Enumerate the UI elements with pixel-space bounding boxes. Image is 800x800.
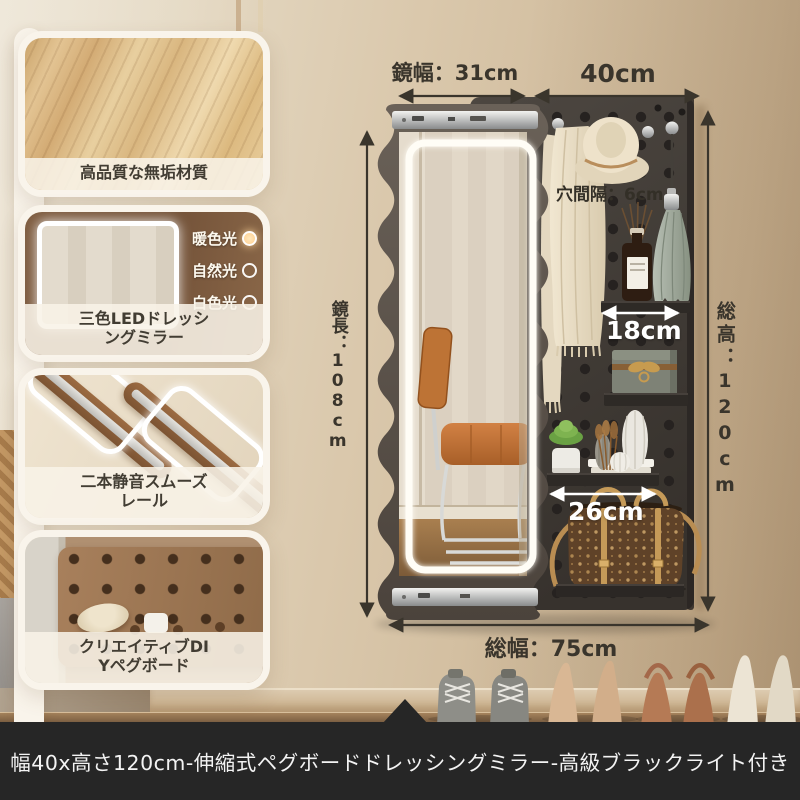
feature-caption: 三色LEDドレッシ ングミラー xyxy=(25,304,263,355)
shelf-small xyxy=(601,301,690,313)
shelf-plants xyxy=(547,473,659,486)
banner-pointer-triangle xyxy=(382,699,428,724)
product-title-banner: 幅40x高さ120cm-伸縮式ペグボードドレッシングミラー-高級ブラックライト付… xyxy=(0,722,800,800)
total-height-label: 総高：120cm xyxy=(714,285,735,515)
jewelry-box xyxy=(612,350,677,394)
mirror-height-label: 鏡長：108cm xyxy=(328,290,347,460)
light-mode-label: 暖色光 xyxy=(192,228,237,249)
feature-caption: クリエイティブDI Yペグボード xyxy=(25,632,263,683)
feature-card-led: 暖色光 自然光 白色光 三色LEDドレッシ ングミラー xyxy=(18,205,270,362)
natural-light-dot-icon xyxy=(242,263,257,278)
shelf-large-label: 26cm xyxy=(568,498,640,526)
mini-cup xyxy=(144,613,168,633)
shoes-row xyxy=(428,655,800,726)
product-title: 幅40x高さ120cm-伸縮式ペグボードドレッシングミラー-高級ブラックライト付… xyxy=(10,746,789,776)
warm-light-dot-icon xyxy=(242,231,257,246)
total-width-label: 総幅：75cm xyxy=(478,638,624,662)
telescopic-rail-top xyxy=(392,111,538,129)
shelf-small-label: 18cm xyxy=(606,317,678,345)
telescopic-rail-bottom xyxy=(392,588,538,606)
shelf-box xyxy=(604,393,688,406)
dressing-mirror xyxy=(378,104,549,620)
shelf-bag xyxy=(556,584,684,597)
mirror-reflection xyxy=(399,132,532,576)
hole-spacing-label: 穴間隔：6cm xyxy=(556,186,676,205)
feature-card-pegboard: クリエイティブDI Yペグボード xyxy=(18,530,270,690)
feature-caption: 高品質な無垢材質 xyxy=(25,158,263,190)
feature-card-rails: 二本静音スムーズ レール xyxy=(18,368,270,525)
light-mode-label: 自然光 xyxy=(192,260,237,281)
feature-card-wood: 高品質な無垢材質 xyxy=(18,31,270,197)
feature-caption: 二本静音スムーズ レール xyxy=(25,467,263,518)
product-infographic: 鏡幅：31cm 40cm 鏡長：108cm 総高：120cm 穴間隔：6cm 1… xyxy=(0,0,800,800)
pegboard-width-label: 40cm xyxy=(580,60,656,88)
mirror-width-label: 鏡幅：31cm xyxy=(385,62,525,85)
